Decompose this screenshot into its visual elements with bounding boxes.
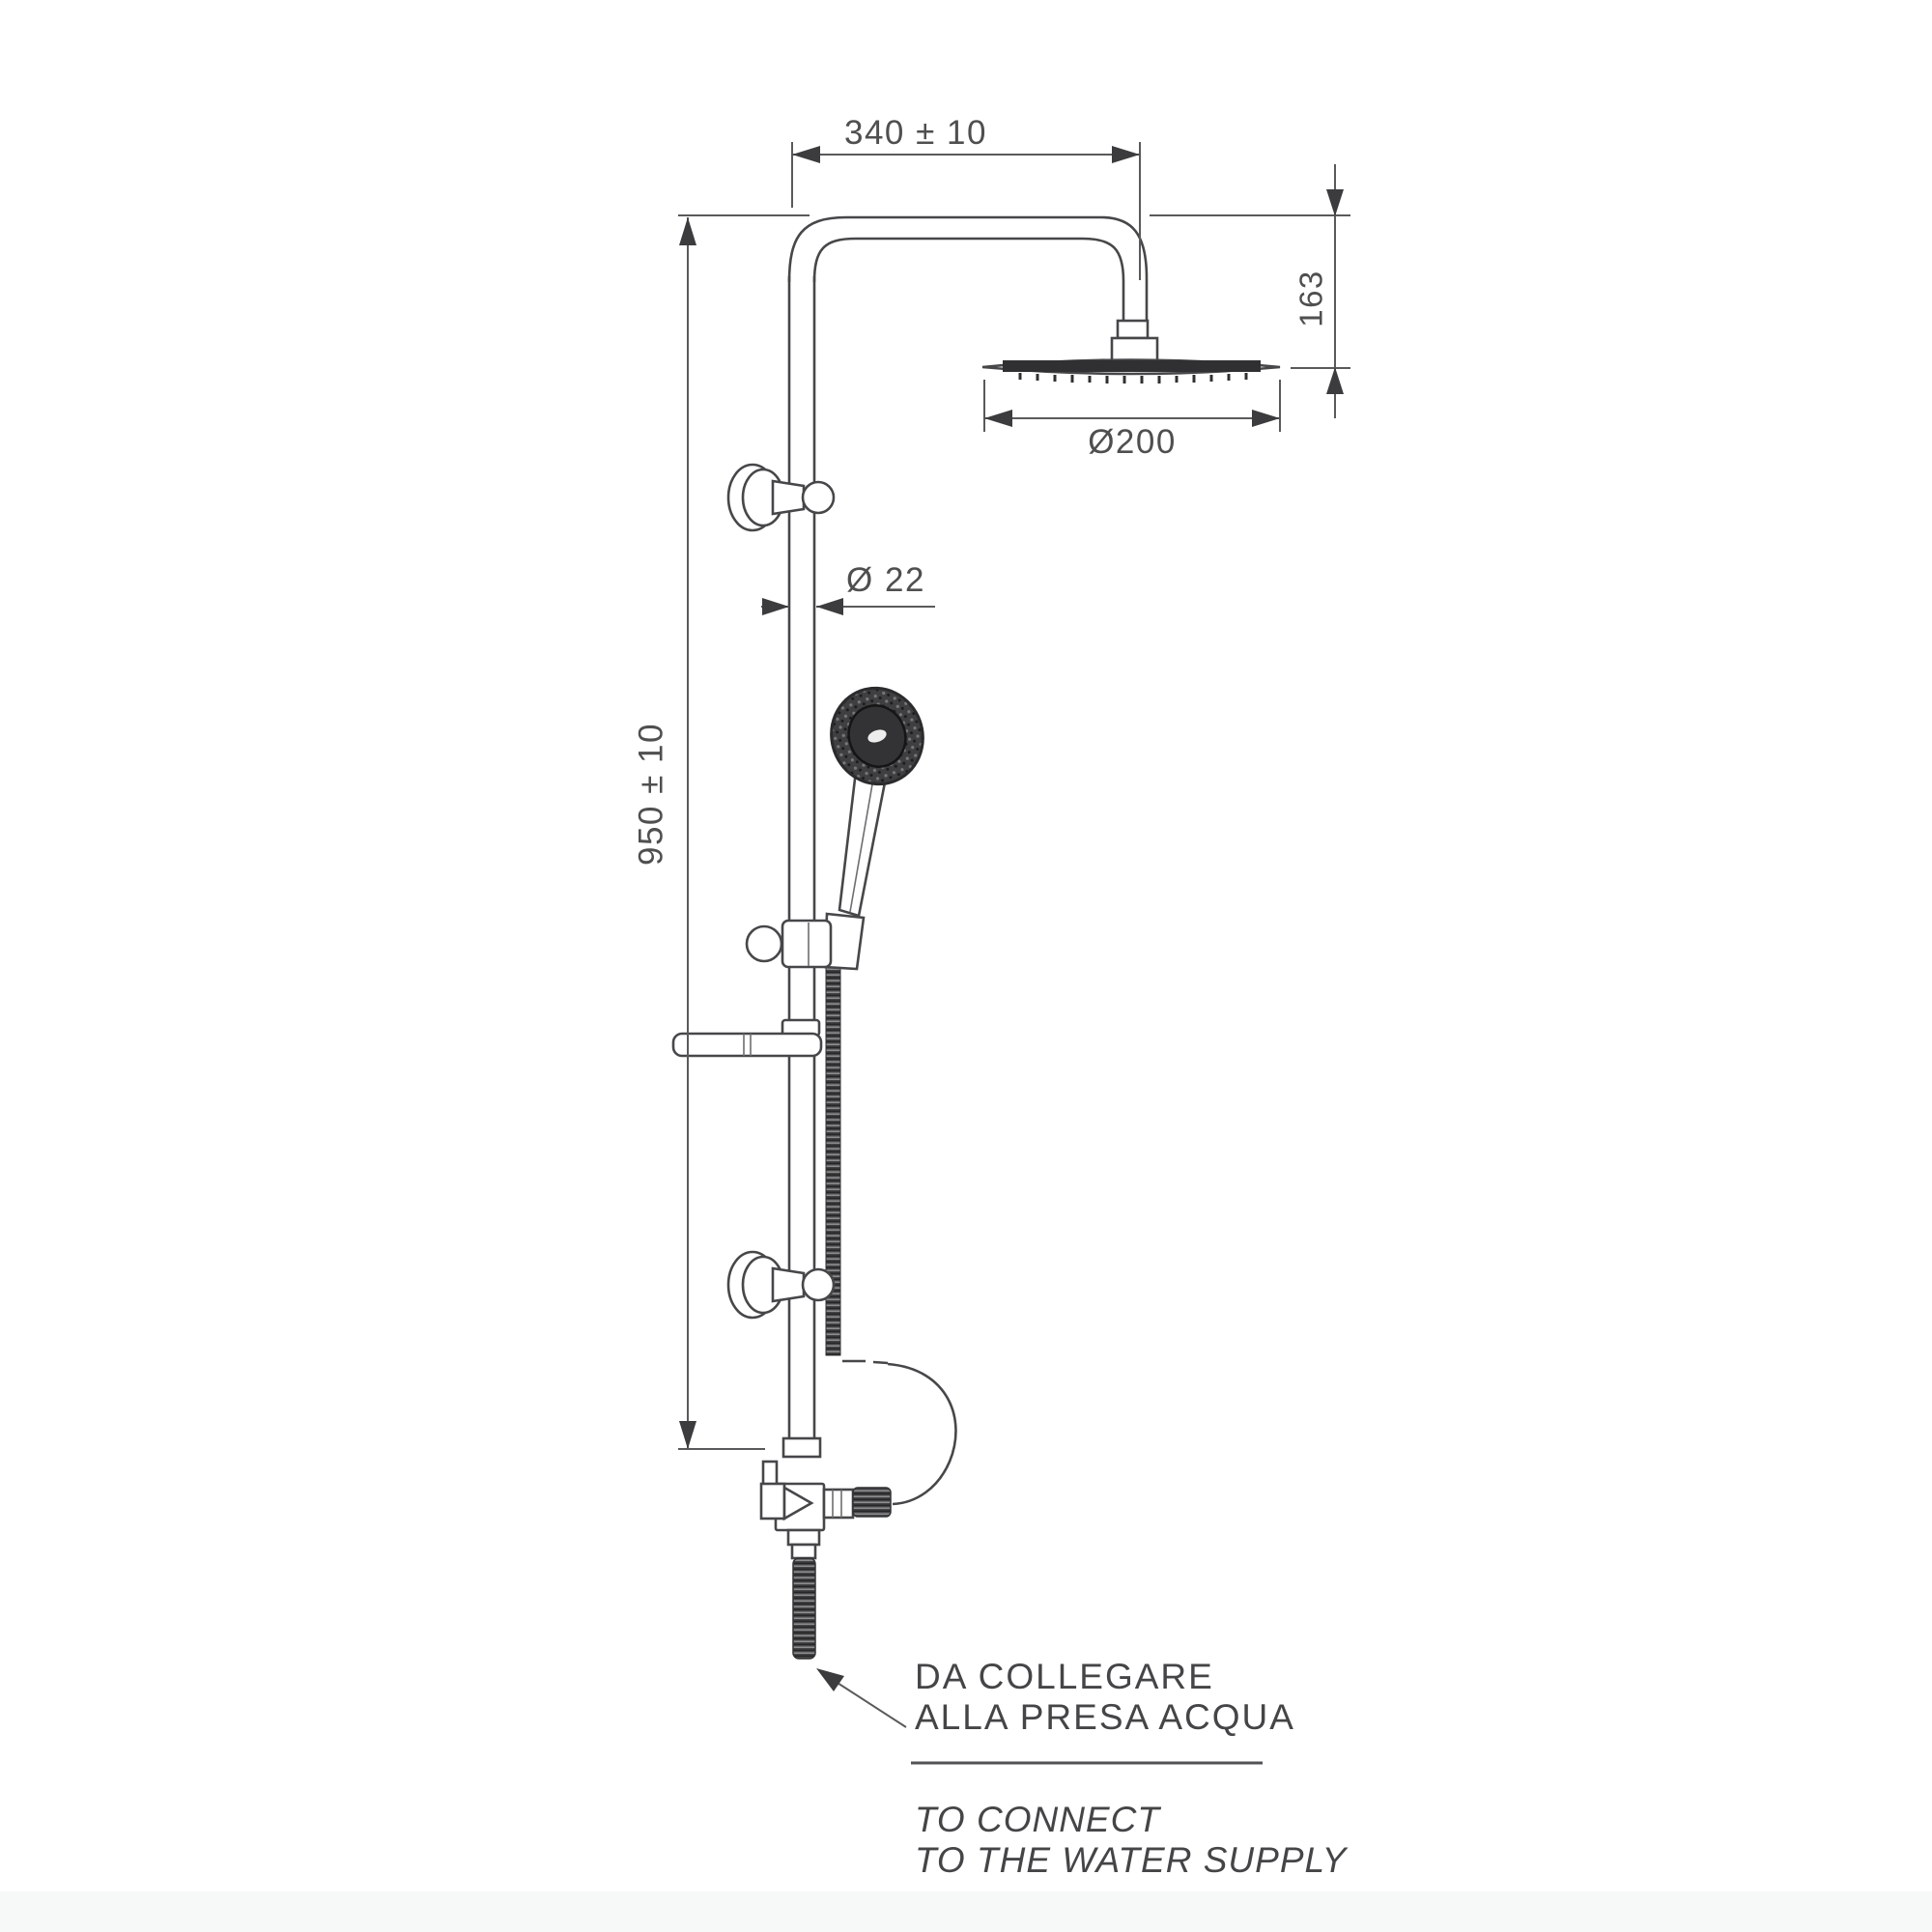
valve-body bbox=[761, 1484, 784, 1519]
lower-coupling bbox=[788, 1530, 819, 1545]
coupling-ring bbox=[783, 1438, 820, 1457]
note-english-line1: TO CONNECT bbox=[915, 1800, 1161, 1839]
shower-column-technical-drawing: 340 ± 10 163 Ø200 Ø 22 950 ± 10 bbox=[0, 0, 1932, 1932]
note-italian-line2: ALLA PRESA ACQUA bbox=[915, 1697, 1295, 1737]
hose-end-fitting bbox=[853, 1488, 891, 1517]
shelf-bar bbox=[673, 1034, 821, 1056]
head-connector-large bbox=[1112, 338, 1157, 360]
dimension-column-height-label: 950 ± 10 bbox=[632, 723, 669, 866]
supply-hose bbox=[793, 1558, 815, 1659]
holder-knob bbox=[747, 926, 781, 961]
dimension-head-drop-label: 163 bbox=[1293, 270, 1329, 327]
background bbox=[0, 0, 1932, 1932]
note-english-line2: TO THE WATER SUPPLY bbox=[915, 1840, 1349, 1880]
holder-clamp bbox=[782, 921, 831, 967]
dimension-pipe-diameter-label: Ø 22 bbox=[846, 561, 925, 599]
drawing-canvas: 340 ± 10 163 Ø200 Ø 22 950 ± 10 bbox=[0, 0, 1932, 1932]
dimension-head-diameter-label: Ø200 bbox=[1088, 423, 1177, 461]
page-edge-shade bbox=[0, 1891, 1932, 1932]
head-connector-small bbox=[1118, 321, 1148, 338]
valve-stem bbox=[763, 1462, 777, 1486]
note-italian-line1: DA COLLEGARE bbox=[915, 1657, 1214, 1696]
hose-nut bbox=[824, 1490, 853, 1518]
dimension-arm-width-label: 340 ± 10 bbox=[844, 114, 987, 152]
lower-neck bbox=[792, 1545, 815, 1558]
